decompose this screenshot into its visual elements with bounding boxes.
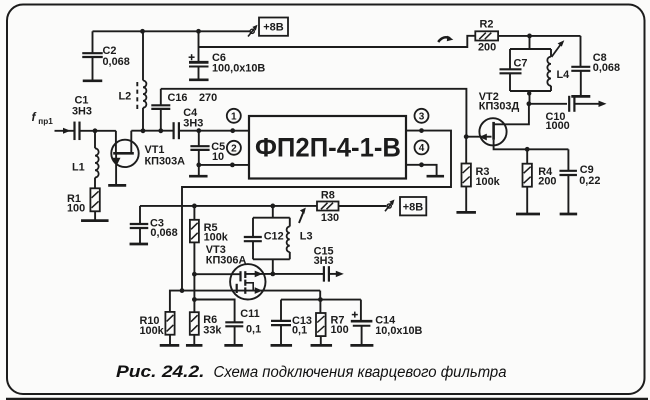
svg-text:100: 100 — [331, 324, 349, 336]
svg-text:100k: 100k — [140, 325, 165, 337]
svg-text:КП303А: КП303А — [145, 156, 186, 168]
svg-text:1: 1 — [231, 111, 237, 122]
svg-text:L4: L4 — [557, 69, 570, 81]
svg-text:Рис. 24.2.: Рис. 24.2. — [116, 363, 205, 381]
svg-text:C12: C12 — [264, 231, 284, 243]
svg-text:130: 130 — [321, 212, 339, 224]
svg-text:10: 10 — [212, 151, 224, 163]
svg-text:200: 200 — [538, 176, 556, 188]
svg-text:270: 270 — [199, 92, 217, 104]
svg-text:C16: C16 — [168, 92, 188, 104]
svg-text:0,068: 0,068 — [593, 62, 620, 74]
svg-text:3Н3: 3Н3 — [314, 255, 334, 267]
svg-text:+8В: +8В — [403, 201, 424, 213]
svg-text:100k: 100k — [204, 232, 229, 244]
svg-text:L1: L1 — [72, 162, 85, 174]
svg-text:R8: R8 — [321, 189, 335, 201]
svg-text:КП303Д: КП303Д — [479, 101, 520, 113]
svg-text:33k: 33k — [203, 325, 222, 337]
svg-text:0,068: 0,068 — [103, 56, 130, 68]
svg-text:R2: R2 — [480, 18, 494, 30]
svg-text:100k: 100k — [476, 176, 501, 188]
svg-text:L2: L2 — [119, 91, 132, 103]
svg-text:100: 100 — [67, 202, 85, 214]
svg-text:4: 4 — [419, 143, 425, 154]
svg-text:пр1: пр1 — [38, 117, 53, 126]
svg-text:0,068: 0,068 — [150, 227, 177, 239]
svg-text:100,0x10В: 100,0x10В — [212, 63, 265, 75]
svg-text:0,22: 0,22 — [579, 175, 600, 187]
svg-text:+8В: +8В — [263, 22, 284, 34]
svg-text:VT1: VT1 — [145, 144, 165, 156]
svg-text:C7: C7 — [514, 58, 528, 70]
svg-text:3Н3: 3Н3 — [72, 106, 92, 118]
svg-text:3: 3 — [419, 111, 425, 122]
svg-text:ФП2П-4-1-В: ФП2П-4-1-В — [255, 133, 401, 163]
svg-text:0,1: 0,1 — [246, 323, 261, 335]
svg-text:Схема подключения кварцевого ф: Схема подключения кварцевого фильтра — [214, 364, 507, 381]
svg-text:2: 2 — [231, 143, 237, 154]
svg-text:1000: 1000 — [546, 120, 570, 132]
svg-text:0,1: 0,1 — [292, 324, 307, 336]
svg-text:C11: C11 — [240, 308, 259, 320]
svg-text:200: 200 — [478, 42, 496, 54]
svg-text:C1: C1 — [75, 94, 89, 106]
svg-text:10,0x10В: 10,0x10В — [375, 325, 422, 337]
svg-text:3Н3: 3Н3 — [183, 117, 203, 129]
svg-text:L3: L3 — [300, 231, 313, 243]
